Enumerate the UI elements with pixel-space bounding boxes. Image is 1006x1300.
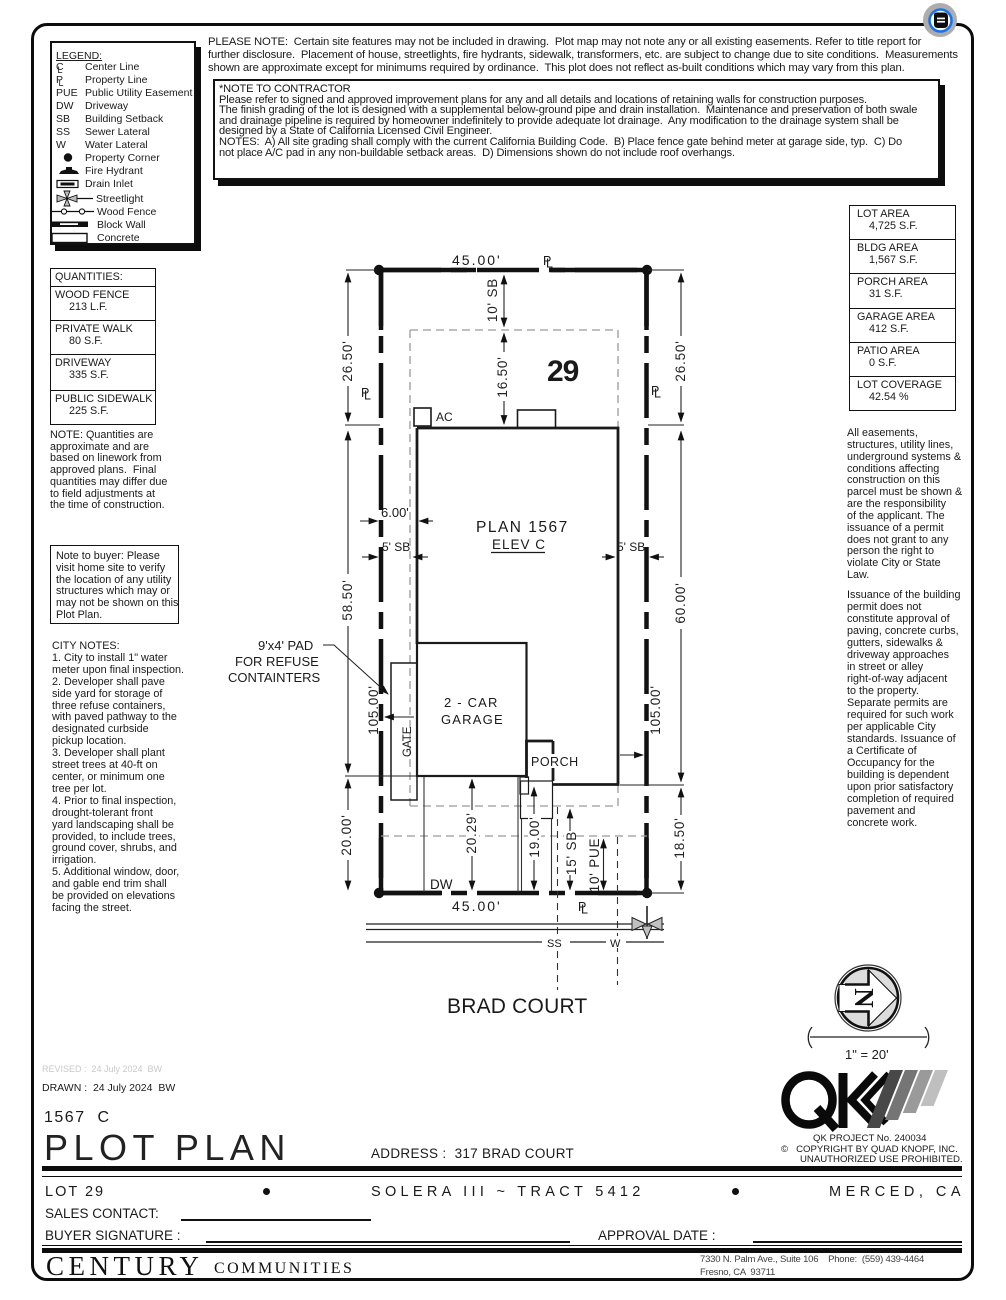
- svg-text:15' SB: 15' SB: [564, 831, 579, 875]
- svg-text:Center Line: Center Line: [85, 61, 139, 73]
- svg-text:Public Utility Easement: Public Utility Easement: [85, 87, 192, 99]
- svg-text:SS: SS: [56, 126, 70, 138]
- svg-text:Block Wall: Block Wall: [97, 219, 146, 231]
- svg-text:29: 29: [547, 355, 579, 388]
- svg-text:60.00': 60.00': [673, 582, 688, 623]
- svg-text:105.00': 105.00': [366, 685, 381, 734]
- svg-text:6.00': 6.00': [381, 505, 409, 520]
- svg-text:19.00': 19.00': [527, 816, 542, 857]
- svg-text:Water Lateral: Water Lateral: [85, 139, 148, 151]
- svg-text:L: L: [546, 257, 553, 271]
- svg-text:Drain Inlet: Drain Inlet: [85, 178, 133, 190]
- svg-text:16.50': 16.50': [495, 356, 510, 397]
- svg-text:L: L: [654, 387, 661, 401]
- svg-text:PORCH: PORCH: [531, 755, 579, 769]
- svg-text:Fire Hydrant: Fire Hydrant: [85, 165, 143, 177]
- svg-text:PUE: PUE: [56, 87, 78, 99]
- svg-text:58.50': 58.50': [340, 579, 355, 620]
- svg-text:Sewer Lateral: Sewer Lateral: [85, 126, 150, 138]
- svg-text:Streetlight: Streetlight: [96, 193, 143, 205]
- svg-text:CONTAINTERS: CONTAINTERS: [228, 670, 321, 685]
- svg-text:10' PUE: 10' PUE: [587, 838, 602, 893]
- svg-text:26.50': 26.50': [340, 340, 355, 381]
- svg-text:10' SB: 10' SB: [485, 278, 500, 322]
- svg-text:2 - CAR: 2 - CAR: [444, 695, 499, 710]
- svg-text:GATE: GATE: [402, 726, 414, 757]
- svg-text:45.00': 45.00': [452, 898, 502, 914]
- svg-text:W: W: [56, 139, 66, 151]
- svg-text:26.50': 26.50': [673, 340, 688, 381]
- svg-text:DW: DW: [430, 877, 453, 892]
- svg-text:5' SB: 5' SB: [617, 540, 645, 554]
- svg-text:105.00': 105.00': [648, 685, 663, 734]
- svg-text:Driveway: Driveway: [85, 100, 129, 112]
- svg-text:GARAGE: GARAGE: [441, 712, 504, 727]
- svg-text:18.50': 18.50': [672, 817, 687, 858]
- svg-text:5' SB: 5' SB: [382, 540, 410, 554]
- svg-text:20.00': 20.00': [339, 814, 354, 855]
- svg-text:ELEV C: ELEV C: [492, 537, 546, 552]
- svg-text:20.29': 20.29': [464, 812, 479, 853]
- svg-text:Property Corner: Property Corner: [85, 152, 160, 164]
- svg-text:45.00': 45.00': [452, 252, 502, 268]
- svg-text:L: L: [581, 903, 588, 917]
- svg-text:SB: SB: [56, 113, 70, 125]
- svg-text:9'x4' PAD: 9'x4' PAD: [258, 638, 313, 653]
- svg-text:L: L: [364, 389, 371, 403]
- svg-text:Wood Fence: Wood Fence: [97, 206, 156, 218]
- svg-text:DW: DW: [56, 100, 74, 112]
- svg-text:N: N: [849, 988, 879, 1008]
- svg-text:AC: AC: [436, 410, 453, 424]
- svg-text:FOR REFUSE: FOR REFUSE: [235, 654, 319, 669]
- svg-text:SS: SS: [547, 938, 562, 950]
- svg-text:BRAD COURT: BRAD COURT: [447, 995, 587, 1018]
- svg-text:PLAN 1567: PLAN 1567: [476, 519, 569, 536]
- svg-text:Building Setback: Building Setback: [85, 113, 164, 125]
- svg-text:W: W: [610, 938, 621, 950]
- svg-text:Concrete: Concrete: [97, 232, 140, 244]
- svg-text:Property Line: Property Line: [85, 74, 148, 86]
